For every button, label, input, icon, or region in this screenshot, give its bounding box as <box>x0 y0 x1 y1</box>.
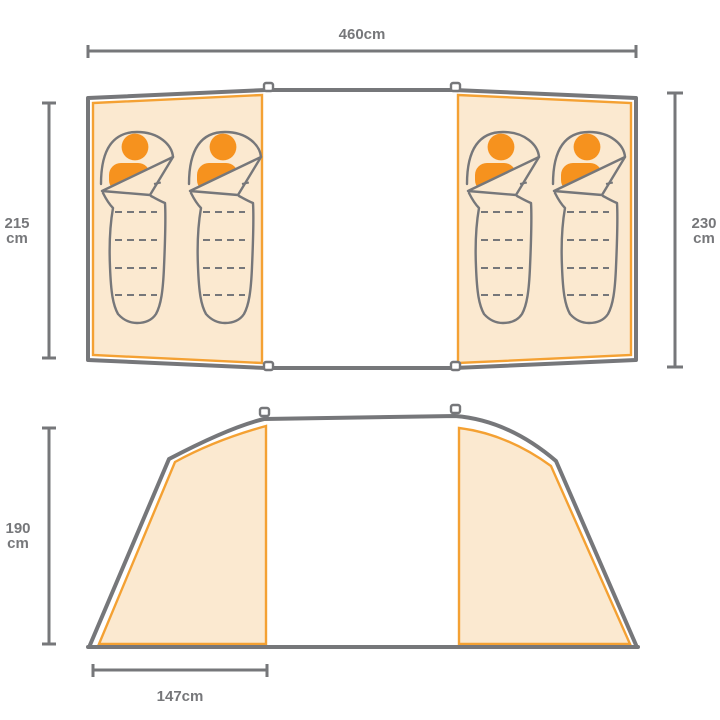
dimension-label-right-depth-unit: cm <box>693 230 715 247</box>
dimension-line <box>42 428 56 644</box>
dimension-total-width: 460cm <box>88 26 636 58</box>
dimension-line <box>88 45 636 58</box>
pole-connector-icon <box>264 83 273 91</box>
dimension-line <box>93 664 267 677</box>
dimension-label-total-width: 460cm <box>339 26 386 43</box>
side-view-elevation: 190 cm 147cm <box>5 405 638 705</box>
left-bedroom-panel <box>93 95 262 363</box>
pole-connector-icon <box>451 83 460 91</box>
dimension-label-left-depth-unit: cm <box>6 230 28 247</box>
dimension-label-base-width: 147cm <box>157 688 204 705</box>
pole-connector-icon <box>451 405 460 413</box>
pole-connector-icon <box>451 362 460 370</box>
left-side-panel <box>99 426 266 644</box>
diagram-canvas: 460cm 215 cm <box>0 0 720 720</box>
dimension-height: 190 cm <box>5 428 56 644</box>
dimension-right-depth: 230 cm <box>667 93 717 367</box>
dimension-base-width: 147cm <box>93 664 267 705</box>
dimension-label-height-unit: cm <box>7 535 29 552</box>
pole-connector-icon <box>264 362 273 370</box>
dimension-line <box>42 103 56 358</box>
right-side-panel <box>459 428 630 644</box>
pole-connector-icon <box>260 408 269 416</box>
dimension-line <box>667 93 683 367</box>
tent-dimensions-diagram: 460cm 215 cm <box>0 0 720 720</box>
top-view-floor-plan: 460cm 215 cm <box>4 26 716 370</box>
dimension-left-depth: 215 cm <box>4 103 56 358</box>
